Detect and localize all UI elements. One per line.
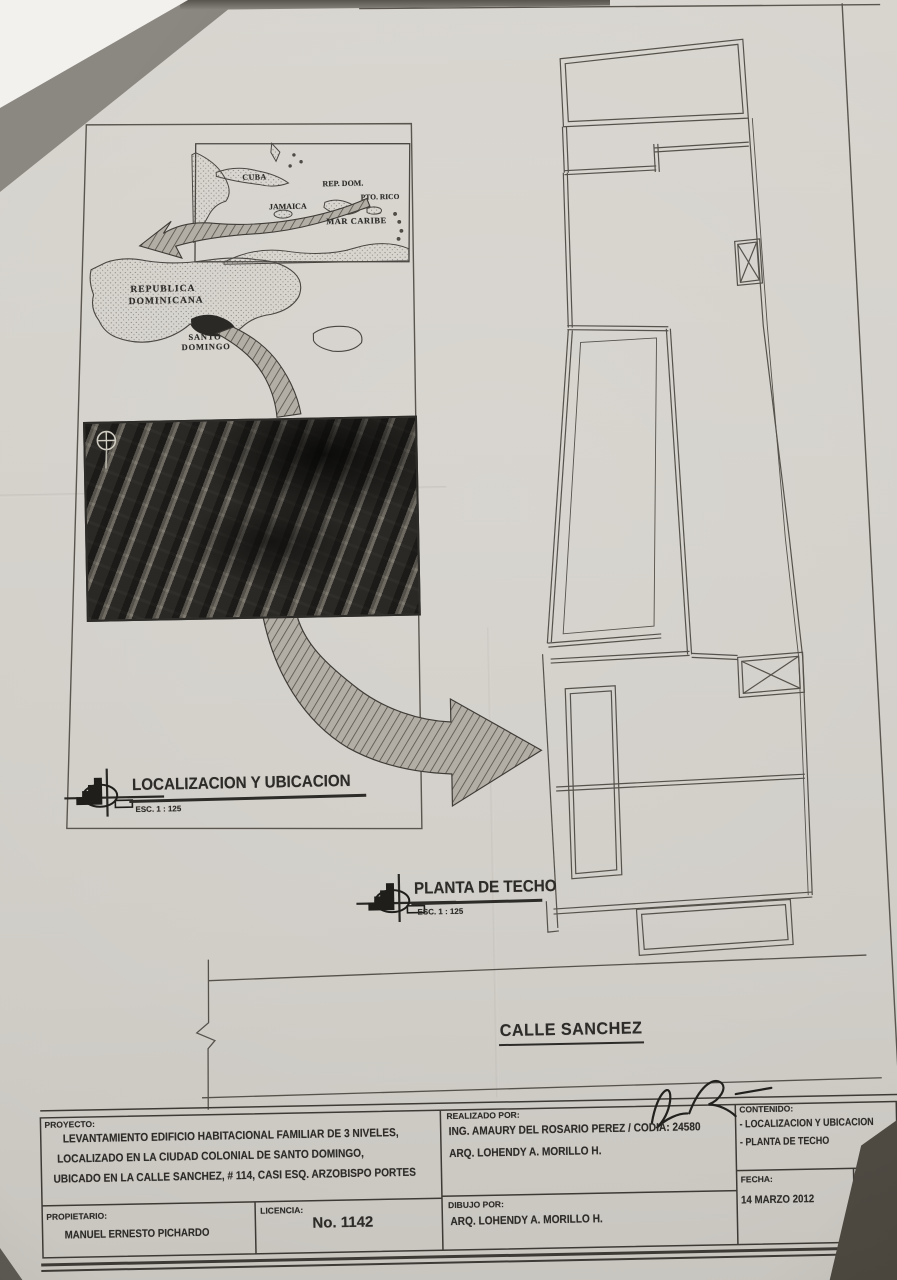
escala-value: 1 : 125 bbox=[860, 1192, 890, 1205]
fecha-label: FECHA: bbox=[741, 1174, 773, 1185]
label-jamaica: JAMAICA bbox=[269, 202, 307, 212]
aerial-photo bbox=[83, 416, 421, 622]
planta-scale: ESC. 1 : 125 bbox=[417, 907, 463, 917]
contenido-item-1: - LOCALIZACION Y UBICACION bbox=[740, 1116, 874, 1131]
dibujo-label: DIBUJO POR: bbox=[448, 1199, 504, 1210]
contenido-item-2: - PLANTA DE TECHO bbox=[740, 1135, 829, 1149]
label-rep-dom: REP. DOM. bbox=[322, 179, 363, 189]
proyecto-label: PROYECTO: bbox=[44, 1119, 95, 1130]
licencia-label: LICENCIA: bbox=[260, 1205, 303, 1216]
label-dominicana: DOMINICANA bbox=[129, 296, 204, 307]
fecha-value: 14 MARZO 2012 bbox=[741, 1193, 814, 1206]
contenido-label: CONTENIDO: bbox=[739, 1103, 793, 1114]
licencia-value: No. 1142 bbox=[312, 1214, 373, 1232]
street-name: CALLE SANCHEZ bbox=[500, 1018, 643, 1041]
label-republica: REPUBLICA bbox=[130, 284, 195, 295]
label-santo: SANTO bbox=[188, 331, 221, 342]
paper-sheet: CUBA REP. DOM. PTO. RICO JAMAICA MAR CAR… bbox=[0, 0, 897, 1280]
roof-hatch-box-upper bbox=[735, 239, 763, 286]
sheet-border-lines bbox=[359, 0, 897, 1101]
planta-title: PLANTA DE TECHO bbox=[414, 877, 557, 899]
scanned-architectural-sheet: CUBA REP. DOM. PTO. RICO JAMAICA MAR CAR… bbox=[0, 0, 897, 1280]
arrow-dr-to-aerial bbox=[216, 326, 301, 419]
label-mar-caribe: MAR CARIBE bbox=[326, 215, 387, 226]
realizado-label: REALIZADO POR: bbox=[446, 1110, 519, 1121]
label-pto-rico: PTO. RICO bbox=[361, 192, 400, 202]
localizacion-scale: ESC. 1 : 125 bbox=[135, 804, 181, 814]
roof-hatch-box-lower bbox=[738, 652, 805, 697]
label-domingo: DOMINGO bbox=[182, 341, 231, 352]
compass-icon bbox=[91, 428, 122, 471]
escala-label: ESCALA: bbox=[858, 1172, 896, 1183]
drawing-linework bbox=[0, 0, 897, 1280]
label-cuba: CUBA bbox=[242, 172, 266, 181]
roof-plan-drawing bbox=[530, 38, 813, 957]
propietario-label: PROPIETARIO: bbox=[46, 1211, 107, 1222]
